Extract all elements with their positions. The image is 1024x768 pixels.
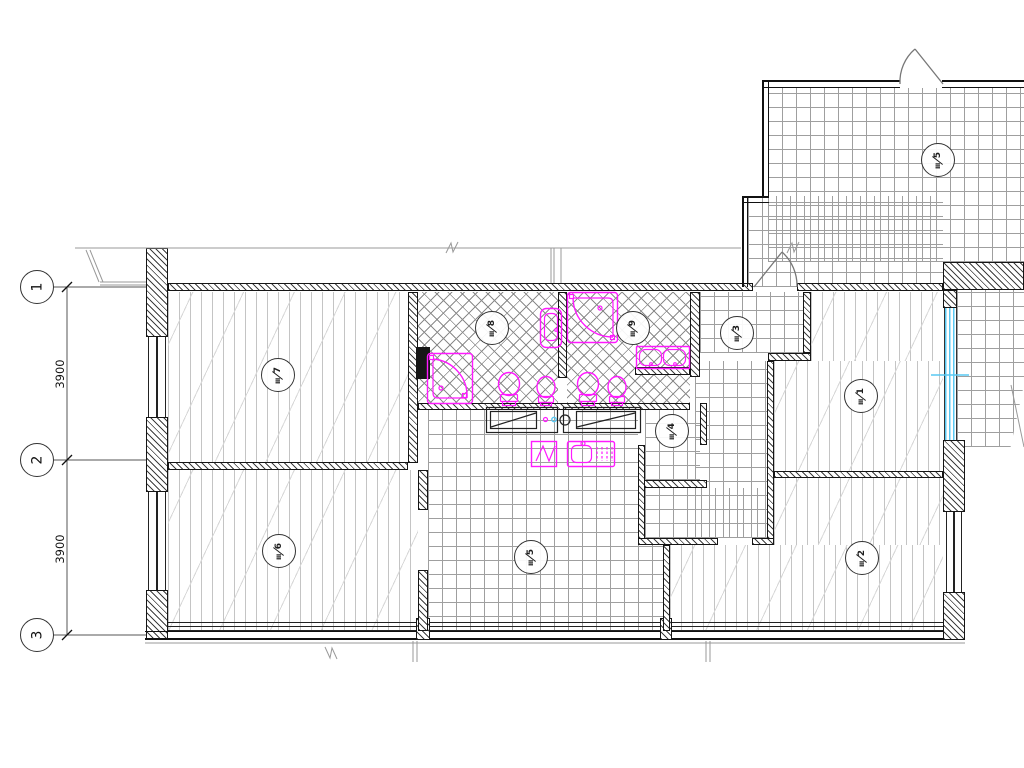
room-marker-8: III8 (475, 311, 509, 345)
dimension-lines (54, 282, 146, 640)
dimension-text: 3900 (53, 526, 67, 572)
grid-axis-label: 3 (29, 631, 45, 640)
room-marker-9: III9 (616, 311, 650, 345)
room-marker-2: III2 (845, 541, 879, 575)
toilet-icon (578, 373, 599, 406)
grid-axis-label: 2 (29, 456, 45, 465)
toilet-icon (499, 373, 520, 406)
washing-machine-icon (532, 442, 557, 467)
floor-plan-drawing: III7 III8 III9 III3 III1 III4 III5 III6 … (0, 0, 1024, 768)
balcony-outline (75, 242, 1024, 662)
grid-axis-bubble-1: 1 (20, 270, 54, 304)
room-marker-3: III3 (720, 316, 754, 350)
room-marker-4: III4 (655, 414, 689, 448)
corner-bathtub-icon (568, 293, 618, 343)
double-washbasin-icon (637, 347, 690, 369)
dimension-text: 3900 (53, 351, 67, 397)
kitchen-sink-icon (568, 442, 615, 467)
grid-axis-bubble-2: 2 (20, 443, 54, 477)
washbasin-icon (541, 309, 562, 348)
room-marker-1: III1 (844, 379, 878, 413)
grid-axis-bubble-3: 3 (20, 618, 54, 652)
corner-bathtub-icon (428, 354, 473, 404)
counter-unit (487, 408, 641, 433)
room-marker-7: III7 (261, 358, 295, 392)
bidet-icon (608, 377, 626, 406)
grid-axis-label: 1 (29, 283, 45, 292)
bidet-icon (537, 377, 555, 406)
room-marker-6: III6 (262, 534, 296, 568)
room-marker-5-kitchen: III5 (514, 540, 548, 574)
room-marker-5-upper: III5 (921, 143, 955, 177)
door-swing (754, 49, 943, 287)
